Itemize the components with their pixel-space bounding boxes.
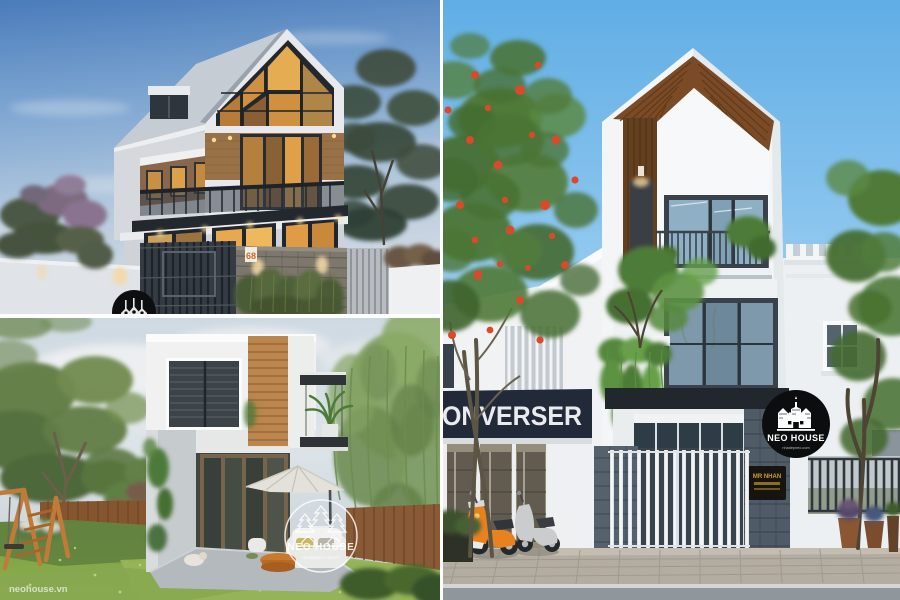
svg-text:neohouse.vn: neohouse.vn [9,584,68,595]
svg-text:nhadepneo.com: nhadepneo.com [782,446,809,450]
svg-text:68: 68 [246,251,256,261]
svg-text:NEO HOUSE: NEO HOUSE [287,542,354,553]
svg-text:MR NHAN: MR NHAN [753,474,781,480]
svg-text:ONVERSER: ONVERSER [442,401,582,431]
svg-text:nhadepneo.com.vn: nhadepneo.com.vn [302,555,340,560]
svg-text:NEO HOUSE: NEO HOUSE [767,433,825,443]
